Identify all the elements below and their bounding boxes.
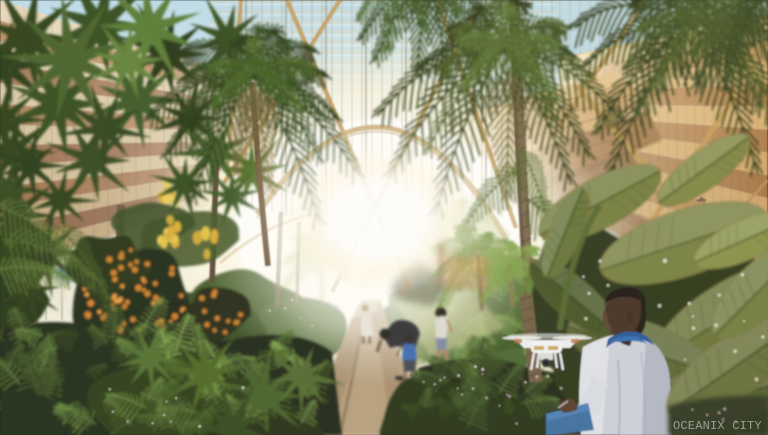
svg-text:OCEANIX CITY: OCEANIX CITY: [673, 419, 762, 433]
